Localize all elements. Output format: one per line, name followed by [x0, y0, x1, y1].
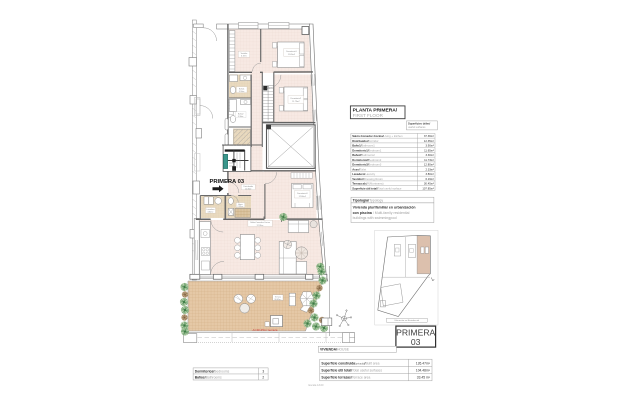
- svg-text:Superficie terrazas/Terrace ar: Superficie terrazas/Terrace area: [321, 376, 370, 380]
- svg-text:buildings with swimmingpool: buildings with swimmingpool: [353, 216, 397, 220]
- svg-text:3: 3: [262, 369, 264, 373]
- svg-text:3.90m²: 3.90m²: [239, 90, 245, 93]
- svg-text:Escala 1/100: Escala 1/100: [309, 383, 325, 387]
- svg-text:Superficie útil total/Total us: Superficie útil total/Total useful surfa…: [321, 369, 382, 373]
- svg-text:Dormitorio3: Dormitorio3: [297, 192, 308, 195]
- svg-text:37.36m²: 37.36m²: [424, 134, 434, 138]
- svg-text:107.85m²: 107.85m²: [422, 186, 434, 190]
- svg-text:Baño2/Bathroom2: Baño2/Bathroom2: [352, 153, 375, 157]
- svg-text:Dormitorio1: Dormitorio1: [286, 50, 297, 53]
- svg-text:3.90m²: 3.90m²: [425, 144, 434, 148]
- svg-text:03: 03: [411, 337, 421, 347]
- svg-text:Baño1/Bathroom1: Baño1/Bathroom1: [352, 144, 375, 148]
- svg-text:PRIMERA 03: PRIMERA 03: [210, 179, 245, 185]
- svg-text:3.80m²: 3.80m²: [208, 211, 214, 214]
- svg-text:12.80m²: 12.80m²: [299, 195, 307, 198]
- svg-text:Dormitorio2/Bedroom2: Dormitorio2/Bedroom2: [352, 158, 382, 162]
- svg-text:Salón-Comedor-Cocina: Salón-Comedor-Cocina: [250, 221, 271, 224]
- svg-text:Superficie útil total/Total us: Superficie útil total/Total useful surfa…: [352, 186, 402, 190]
- svg-text:Salón-Comedor-Cocina/Living +: Salón-Comedor-Cocina/Living + kitchen: [352, 134, 403, 138]
- svg-text:11.73m²: 11.73m²: [292, 100, 300, 103]
- svg-text:Tipología/Typology: Tipología/Typology: [353, 198, 384, 202]
- svg-text:2.33m²: 2.33m²: [238, 205, 244, 208]
- svg-text:con piscina / Multi-family res: con piscina / Multi-family residential: [353, 211, 410, 215]
- svg-text:104.48m²: 104.48m²: [416, 369, 431, 373]
- svg-text:Dormitorio3/Bedroom3: Dormitorio3/Bedroom3: [352, 163, 382, 167]
- svg-text:12.35m²: 12.35m²: [245, 187, 252, 190]
- svg-text:11.73m²: 11.73m²: [424, 158, 434, 162]
- svg-text:Baños/Bathrooms: Baños/Bathrooms: [195, 376, 222, 380]
- svg-text:Superficies útiles/: Superficies útiles/: [408, 121, 430, 125]
- svg-text:Distribuidor/Corridor: Distribuidor/Corridor: [352, 139, 378, 143]
- svg-text:12.80m²: 12.80m²: [424, 163, 434, 167]
- svg-text:Dormitorio1/Bedroom1: Dormitorio1/Bedroom1: [352, 148, 382, 152]
- svg-text:11.65m²: 11.65m²: [424, 148, 434, 152]
- svg-text:12.35m²: 12.35m²: [424, 139, 434, 143]
- svg-text:37.36m²: 37.36m²: [257, 224, 264, 227]
- svg-text:Vestidor: Vestidor: [241, 52, 248, 55]
- svg-text:3.80m²: 3.80m²: [425, 172, 434, 176]
- svg-text:Lavadero/Laundry: Lavadero/Laundry: [352, 172, 376, 176]
- svg-text:Dormitorios/Bedrooms: Dormitorios/Bedrooms: [195, 369, 230, 373]
- svg-text:2: 2: [262, 376, 264, 380]
- svg-text:6.19m²: 6.19m²: [425, 177, 434, 181]
- svg-text:30.45m²: 30.45m²: [424, 182, 434, 186]
- svg-text:30.45m²: 30.45m²: [274, 298, 281, 301]
- svg-text:Dormitorio2: Dormitorio2: [291, 97, 302, 100]
- svg-text:Aseo/Toilet: Aseo/Toilet: [352, 167, 366, 171]
- svg-text:useful surfaces: useful surfaces: [408, 125, 426, 129]
- svg-text:Ubicación en Residencial: Ubicación en Residencial: [395, 320, 420, 322]
- svg-text:VIVIENDA/HOUSE: VIVIENDA/HOUSE: [320, 348, 350, 352]
- svg-text:Vestidor/Dressing Room: Vestidor/Dressing Room: [352, 177, 383, 181]
- svg-text:Terraza ab./A(Montearra): Terraza ab./A(Montearra): [352, 182, 383, 186]
- svg-text:126.47m²: 126.47m²: [416, 361, 431, 365]
- svg-text:PRIMERA: PRIMERA: [396, 327, 435, 337]
- svg-text:33.45 m²: 33.45 m²: [417, 376, 431, 380]
- svg-text:11.65m²: 11.65m²: [288, 53, 296, 56]
- svg-text:2.33m²: 2.33m²: [425, 167, 434, 171]
- svg-text:Superficie construida(privada): Superficie construida(privada)/Built are…: [321, 361, 379, 365]
- svg-text:3.30m²: 3.30m²: [425, 153, 434, 157]
- svg-text:6.19m²: 6.19m²: [241, 55, 247, 58]
- svg-text:FIRST FLOOR: FIRST FLOOR: [353, 113, 384, 118]
- svg-text:A=30.45m² terraza: A=30.45m² terraza: [252, 328, 278, 332]
- svg-text:3.30m²: 3.30m²: [238, 115, 244, 118]
- svg-text:Vivienda plurifamiliar en urba: Vivienda plurifamiliar en urbanización: [353, 206, 416, 210]
